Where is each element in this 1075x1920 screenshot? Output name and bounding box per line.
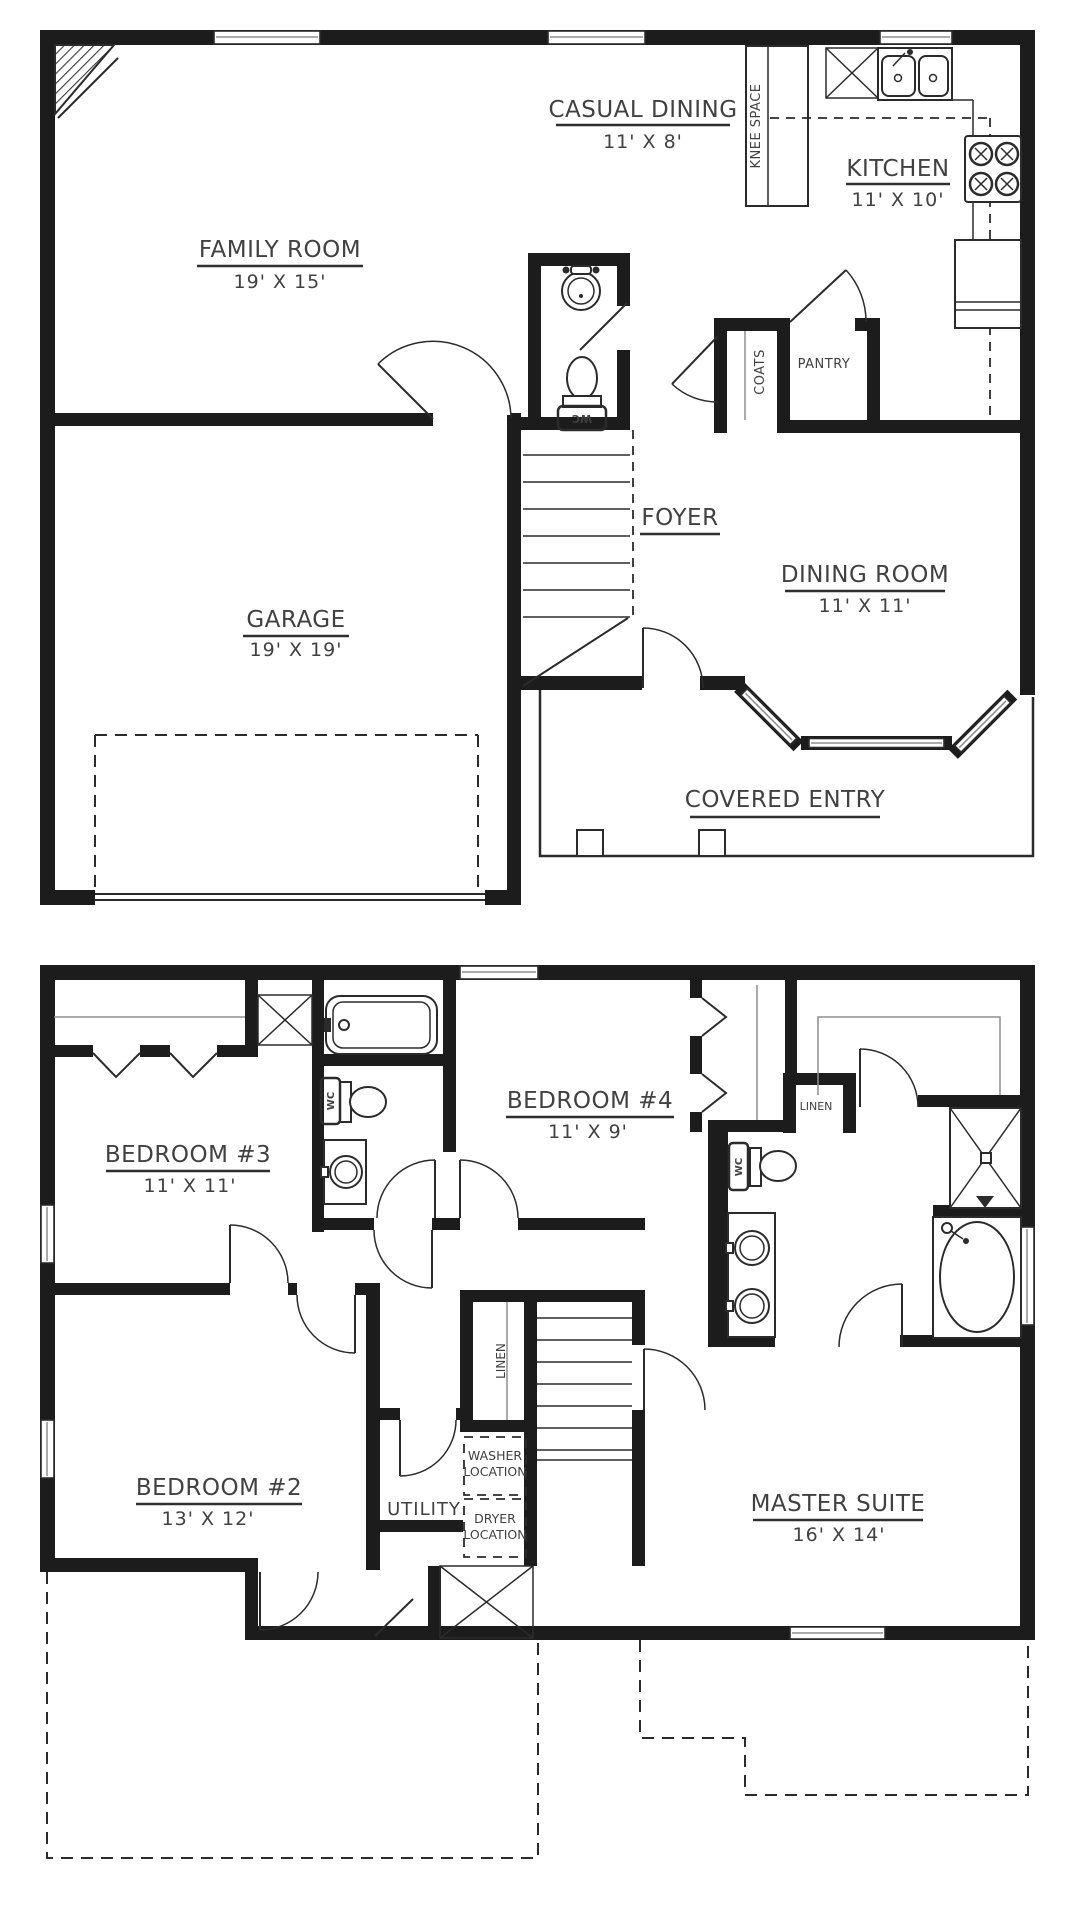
hall-bath-fixtures: WC (258, 995, 437, 1218)
bedroom4-door (460, 1160, 518, 1218)
garage-door (95, 735, 485, 905)
dryer-label-line1: DRYER (474, 1511, 516, 1526)
room-dims-family-room: 19' X 15' (234, 271, 327, 293)
room-label-master-suite: MASTER SUITE (751, 1491, 926, 1517)
floor-plan-page: WC CASUAL DINING 11' X 8' KITCHEN 11' X … (0, 0, 1075, 1920)
room-label-covered-entry: COVERED ENTRY (685, 787, 886, 813)
room-label-casual-dining: CASUAL DINING (548, 97, 737, 123)
laundry: WASHER LOCATION DRYER LOCATION (463, 1437, 526, 1557)
bay-window (734, 682, 1017, 759)
bedroom2-window (41, 1420, 54, 1478)
room-label-bedroom2: BEDROOM #2 (136, 1475, 302, 1501)
kitchen-window (880, 31, 952, 44)
toilet (563, 357, 601, 407)
linen-shelf-closet (258, 995, 312, 1045)
wc-hall-label: WC (326, 1092, 337, 1110)
room-label-foyer: FOYER (641, 505, 718, 531)
hall-toilet: WC (321, 1078, 386, 1124)
room-label-dining-room: DINING ROOM (781, 562, 949, 588)
bath-door (374, 1230, 432, 1288)
room-dims-bedroom3: 11' X 11' (144, 1175, 237, 1197)
bedroom3-door (230, 1225, 288, 1283)
room-dims-kitchen2: 11' X 10' (852, 189, 945, 211)
room-label-bedroom3: BEDROOM #3 (105, 1142, 271, 1168)
stair-hall-door (644, 1349, 705, 1410)
stove (965, 136, 1021, 202)
room-label-garage: GARAGE (246, 607, 345, 633)
fireplace (55, 45, 118, 118)
room-label-bedroom4: BEDROOM #4 (507, 1088, 673, 1114)
washer-label-line1: WASHER (468, 1448, 522, 1463)
powder-room-fixtures: WC (558, 266, 627, 430)
roof-outline-dashed (47, 1572, 1028, 1858)
pantry-door (790, 270, 866, 322)
kitchen-sink (878, 48, 952, 100)
washer-label-line2: LOCATION (463, 1464, 526, 1479)
bedroom4-window (460, 966, 538, 979)
hall-bath-door (377, 1160, 435, 1218)
pantry-label: PANTRY (798, 357, 851, 372)
second-floor: WC (40, 965, 1035, 1858)
family-room-door (378, 341, 511, 419)
bedroom2-door (297, 1295, 355, 1353)
room-dims-master-suite: 16' X 14' (793, 1524, 886, 1546)
walkin-closet-door (860, 1049, 918, 1107)
double-vanity (726, 1213, 775, 1337)
stairs-first-floor (523, 430, 633, 686)
master-bath-window (1021, 1227, 1034, 1325)
linen-master-label: LINEN (800, 1100, 833, 1113)
first-floor-labels: CASUAL DINING 11' X 8' KITCHEN 11' X 10'… (197, 83, 950, 817)
room-label-utility: UTILITY (387, 1499, 461, 1520)
master-bedroom-door (839, 1284, 902, 1347)
master-toilet: WC (729, 1143, 796, 1190)
first-floor-doors (378, 270, 866, 688)
first-floor: WC CASUAL DINING 11' X 8' KITCHEN 11' X … (40, 30, 1035, 905)
wc-master-label: WC (734, 1158, 745, 1176)
room-label-kitchen: KITCHEN (846, 156, 949, 182)
casual-dining-window (548, 31, 645, 44)
floor-plan-image: WC CASUAL DINING 11' X 8' KITCHEN 11' X … (0, 0, 1075, 1920)
knee-space-label: KNEE SPACE (749, 83, 764, 168)
room-dims-bedroom2: 13' X 12' (162, 1508, 255, 1530)
rear-closet-door (260, 1572, 318, 1630)
pedestal-sink (562, 266, 600, 310)
wc-label: WC (572, 412, 592, 425)
utility-door (400, 1420, 456, 1476)
second-floor-walls (40, 965, 1035, 1640)
linen-hall-label: LINEN (494, 1343, 508, 1379)
coats-door (672, 336, 718, 402)
room-dims-dining-room: 11' X 11' (819, 595, 912, 617)
room-dims-casual-dining: 11' X 8' (603, 131, 683, 153)
bedroom3-window (41, 1205, 54, 1263)
front-door (643, 628, 703, 688)
master-tub (933, 1217, 1021, 1338)
shower (950, 1108, 1021, 1208)
bathtub (324, 996, 437, 1054)
family-room-window (214, 31, 320, 44)
room-label-family-room: FAMILY ROOM (199, 237, 361, 263)
refrigerator (955, 240, 1021, 328)
room-dims-bedroom4: 11' X 9' (548, 1121, 628, 1143)
dryer-label-line2: LOCATION (463, 1527, 526, 1542)
corner-cabinet (826, 48, 878, 98)
coats-label: COATS (753, 349, 768, 395)
room-dims-garage: 19' X 19' (250, 639, 343, 661)
master-suite-window (790, 1627, 885, 1639)
hall-bath-sink (321, 1140, 366, 1204)
covered-entry-porch (540, 690, 1033, 856)
